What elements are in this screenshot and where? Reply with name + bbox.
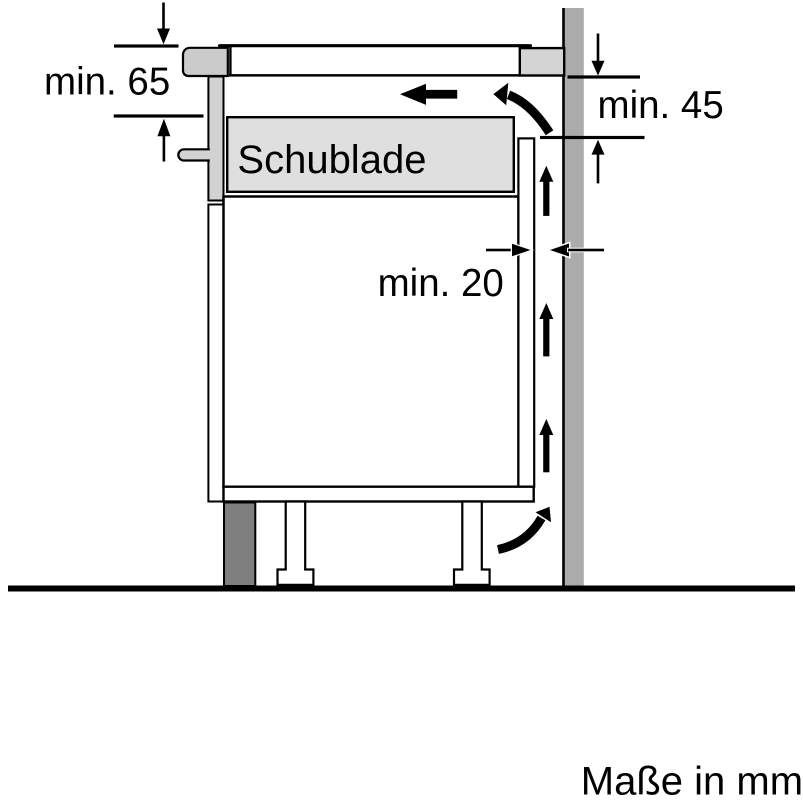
svg-text:min. 20: min. 20	[378, 262, 504, 305]
svg-text:Schublade: Schublade	[237, 138, 426, 182]
svg-text:min. 45: min. 45	[598, 84, 724, 127]
svg-text:Maße in mm: Maße in mm	[581, 760, 803, 800]
svg-text:min. 65: min. 65	[44, 61, 170, 104]
